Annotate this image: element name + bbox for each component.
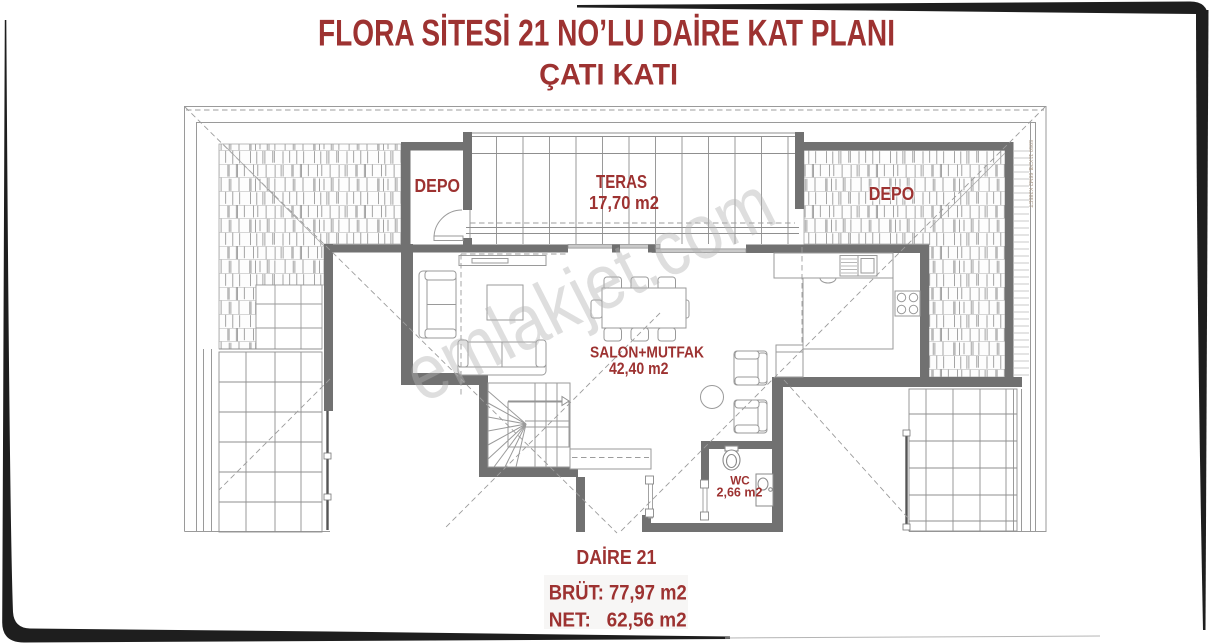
svg-text:FLORA SİTESİ 21 NO’LU DAİRE KA: FLORA SİTESİ 21 NO’LU DAİRE KAT PLANI: [318, 13, 895, 54]
svg-text:2,66 m2: 2,66 m2: [717, 486, 763, 500]
svg-text:1.66M2 K385ET: 1.66M2 K385ET: [1027, 168, 1033, 208]
svg-text:17,70 m2: 17,70 m2: [589, 193, 659, 213]
svg-text:TERAS: TERAS: [596, 172, 647, 192]
svg-text:42,40 m2: 42,40 m2: [609, 359, 669, 378]
svg-text:ÇATI KATI: ÇATI KATI: [539, 59, 678, 92]
svg-text:BRÜT: 77,97 m2: BRÜT: 77,97 m2: [549, 582, 687, 605]
svg-text:DEPO: DEPO: [415, 175, 461, 196]
svg-text:5950 11X29: 5950 11X29: [1027, 140, 1033, 169]
svg-text:NET: 62,56 m2: NET: 62,56 m2: [549, 610, 687, 632]
svg-text:DEPO: DEPO: [869, 183, 915, 204]
svg-text:DAİRE 21: DAİRE 21: [576, 546, 656, 569]
